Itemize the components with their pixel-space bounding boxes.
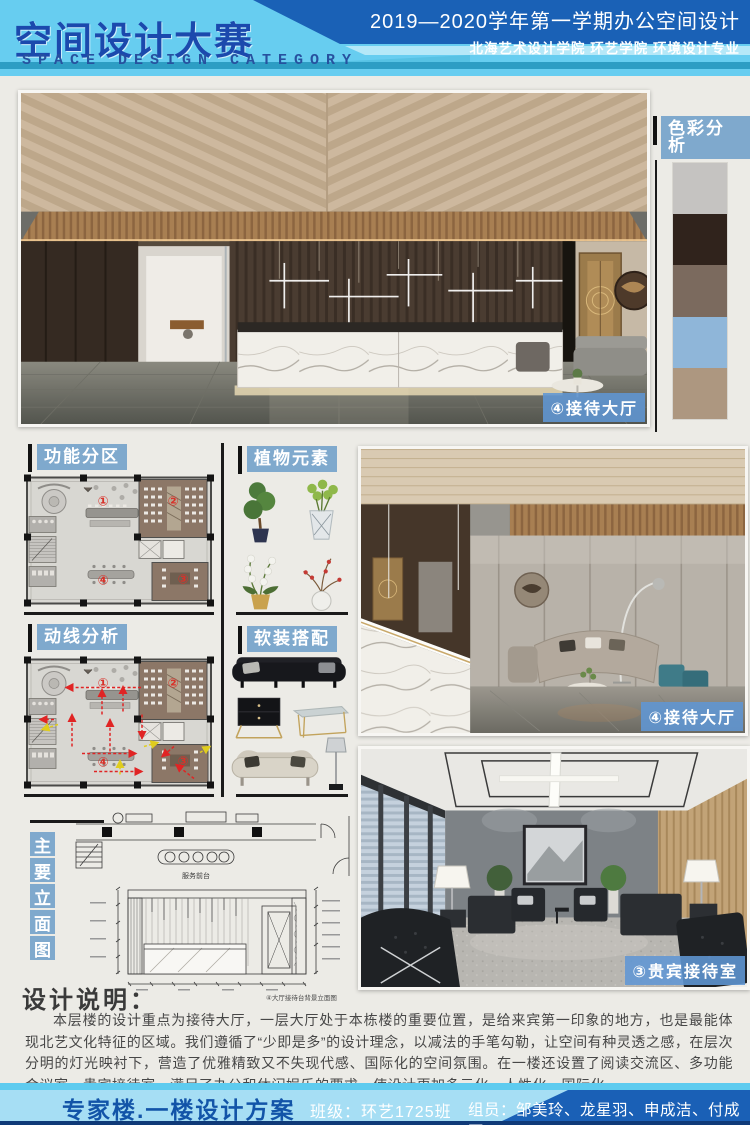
floor-plan-circulation (24, 656, 214, 789)
plant-green-bouquet-icon (293, 478, 350, 543)
plants-label: 植物元素 (247, 446, 337, 472)
elevation-title-char: 要 (30, 858, 55, 882)
plant-red-branch-icon (293, 546, 350, 611)
lobby-rendering-art (21, 93, 647, 424)
color-analysis-tick (653, 116, 657, 145)
footer-team-members: 组员：邹美玲、龙星羽、申成洁、付成军 (468, 1098, 750, 1125)
divider (24, 794, 214, 797)
elevation-title-vertical: 主 要 立 面 图 (30, 832, 55, 962)
soft-furnishing-tick (238, 626, 242, 654)
school-name: 北海艺术设计学院 环艺学院 环境设计专业 (260, 37, 740, 57)
poster-header: 空间设计大赛 SPACE DESIGN CATEGORY 2019—2020学年… (0, 0, 750, 76)
color-swatch-grey (673, 163, 727, 214)
plan-counter-caption: 服务前台 (182, 871, 210, 880)
course-session: 2019—2020学年第一学期办公空间设计 (260, 5, 740, 34)
color-swatch-espresso (673, 214, 727, 265)
divider (236, 794, 348, 797)
function-zoning-tick (28, 444, 32, 472)
footer-project-title: 专家楼.一楼设计方案 (62, 1091, 295, 1125)
plant-topiary-icon (232, 478, 289, 543)
soft-furnishing-label: 软装搭配 (247, 626, 337, 652)
floor-lamp-icon (322, 734, 350, 794)
black-cabinet-icon (232, 694, 286, 740)
elevation-title-char: 面 (30, 910, 55, 934)
plant-elements-grid (232, 478, 350, 610)
rendering-reception-hall-main: ④接待大厅 (18, 90, 650, 427)
divider (236, 612, 348, 615)
rendering-reception-hall-second: ④接待大厅 (358, 446, 748, 736)
circulation-label: 动线分析 (37, 624, 127, 650)
color-analysis-label: 色彩分析 (661, 116, 750, 159)
label-reception-hall-second: ④接待大厅 (641, 702, 743, 731)
footer-class-info: 班级：环艺1725班 (310, 1098, 452, 1122)
header-right: 2019—2020学年第一学期办公空间设计 北海艺术设计学院 环艺学院 环境设计… (260, 5, 740, 57)
color-swatch-tan (673, 368, 727, 419)
elevation-caption: ④大厅接待台背景立面图 (266, 993, 337, 1002)
divider (24, 612, 214, 615)
label-reception-hall-main: ④接待大厅 (543, 393, 645, 422)
technical-drawings: 服务前台 (66, 806, 362, 1004)
light-sofa-icon (228, 744, 322, 790)
color-analysis-rule (655, 160, 657, 432)
lobby2-rendering-art (361, 449, 745, 733)
elevation-title-char: 图 (30, 936, 55, 960)
color-swatch-taupe (673, 265, 727, 316)
black-sofa-icon (228, 654, 350, 690)
plants-tick (238, 446, 242, 474)
color-swatch-blue (673, 317, 727, 368)
rendering-vip-room: ③贵宾接待室 (358, 746, 750, 990)
elevation-title-char: 立 (30, 884, 55, 908)
function-zoning-label: 功能分区 (37, 444, 127, 470)
floor-plan-function-zoning (24, 474, 214, 607)
label-vip-room: ③贵宾接待室 (625, 956, 745, 985)
elevation-title-char: 主 (30, 832, 55, 856)
plant-orchid-icon (232, 546, 289, 611)
column-divider (221, 443, 224, 797)
vip-rendering-art (361, 749, 747, 987)
circulation-tick (28, 624, 32, 652)
color-swatch-column (672, 162, 728, 420)
design-competition-poster: 空间设计大赛 SPACE DESIGN CATEGORY 2019—2020学年… (0, 0, 750, 1125)
